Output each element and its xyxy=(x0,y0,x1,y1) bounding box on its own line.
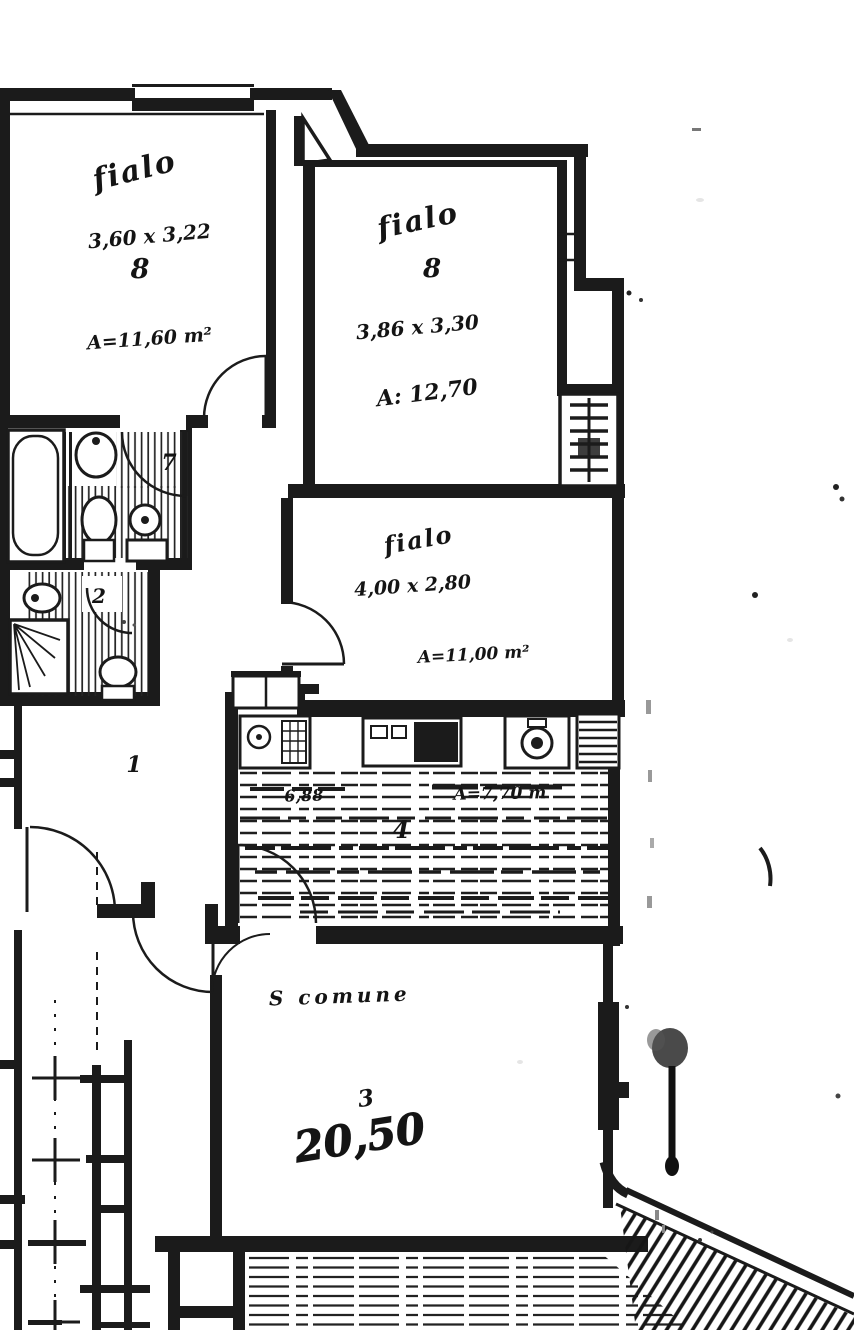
burner xyxy=(371,726,387,738)
sink-icon xyxy=(24,584,60,612)
diagonal-band-hatch xyxy=(620,1206,854,1330)
living-area: 20,50 xyxy=(290,1103,429,1172)
bedroom2-number: 8 xyxy=(422,254,441,284)
kitchen-area-scribble: A=7,70 m xyxy=(451,783,546,805)
bedroom1-number: 8 xyxy=(130,254,150,285)
ghost-mark xyxy=(650,838,654,848)
ghost-mark xyxy=(648,770,652,782)
bedroom3-area: A=11,00 m² xyxy=(415,642,530,668)
wall-stub xyxy=(0,778,18,787)
living-name: S comune xyxy=(268,982,411,1011)
radiator-icon xyxy=(560,394,618,486)
scan-noise xyxy=(122,128,845,1242)
wall xyxy=(574,144,586,290)
wall-stub xyxy=(0,1240,22,1249)
wall-stub xyxy=(0,1060,22,1069)
floor-plan-drawing: fialo 3,60 x 3,22 8 A=11,60 m² fialo 8 3… xyxy=(0,0,854,1330)
speck xyxy=(836,1094,841,1099)
bidet-base xyxy=(84,540,114,561)
door-arc xyxy=(133,912,213,992)
diagonal-wall xyxy=(328,90,369,151)
wall xyxy=(0,88,135,101)
wall xyxy=(603,944,613,1004)
toilet-dot xyxy=(141,516,149,524)
toilet-tank xyxy=(127,540,167,561)
wall-stub xyxy=(0,750,18,759)
kitchen-sink-unit xyxy=(240,716,310,768)
wall-stub xyxy=(0,1195,25,1204)
wall xyxy=(210,975,222,1238)
wall xyxy=(141,882,155,906)
wall xyxy=(168,1252,180,1330)
living-number: 3 xyxy=(356,1084,376,1113)
paper-smudge xyxy=(787,638,793,642)
bathtub-basin xyxy=(13,436,58,555)
triangle-outline xyxy=(303,118,330,164)
door-arc xyxy=(204,356,266,418)
hallway-number: 1 xyxy=(126,752,141,778)
wall-tick xyxy=(80,1285,150,1293)
speck xyxy=(639,298,643,302)
ghost-mark xyxy=(662,1225,665,1233)
flue-shaft-icon xyxy=(577,714,619,768)
door-arc xyxy=(282,602,344,664)
ghost-mark xyxy=(646,700,651,714)
bathroom-small-number: 2 xyxy=(91,584,106,608)
wardrobe-icon xyxy=(231,671,301,708)
tub-divider xyxy=(63,432,66,558)
scanned-floor-plan-page: fialo 3,60 x 3,22 8 A=11,60 m² fialo 8 3… xyxy=(0,0,854,1330)
wall xyxy=(172,1306,234,1318)
wall xyxy=(557,160,567,392)
paper-smudge xyxy=(517,1060,523,1064)
wall-thick xyxy=(598,1002,619,1130)
bedroom2-dimensions: 3,86 x 3,30 xyxy=(355,310,480,345)
speck xyxy=(698,1238,702,1242)
stove-dark-half xyxy=(414,722,458,762)
drainer-grid xyxy=(282,721,306,763)
bedroom1-scribble: fialo xyxy=(87,144,180,199)
window-sill xyxy=(132,98,254,111)
toilet-icon xyxy=(100,657,136,687)
wall xyxy=(233,1252,245,1330)
kitchen-value: 6,88 xyxy=(284,785,324,805)
wall xyxy=(148,568,160,706)
wall xyxy=(0,95,10,427)
bidet-icon xyxy=(82,497,116,543)
wall-notch xyxy=(613,1082,629,1098)
speck xyxy=(627,291,632,296)
speck xyxy=(122,620,126,624)
bedroom1-area: A=11,60 m² xyxy=(84,324,212,355)
speck xyxy=(752,592,758,598)
bathroom-main-number: 7 xyxy=(161,450,177,476)
bedroom3-scribble: fialo xyxy=(380,519,456,560)
washer-door xyxy=(531,737,543,749)
wall xyxy=(303,160,315,484)
wall xyxy=(356,144,588,157)
wall xyxy=(250,88,332,100)
wall-tick xyxy=(100,1205,132,1213)
kitchen-number: 4 xyxy=(393,815,410,844)
door-arc xyxy=(30,827,115,912)
drain-dot xyxy=(256,734,262,740)
wall xyxy=(225,705,238,930)
faucet-dot xyxy=(31,594,39,602)
burner xyxy=(392,726,406,738)
wall-tick xyxy=(95,1322,150,1328)
washer-panel xyxy=(528,719,546,727)
speck xyxy=(833,484,839,490)
wall xyxy=(315,160,565,167)
wall xyxy=(155,1236,648,1252)
wall xyxy=(205,926,240,944)
cross-marks xyxy=(32,1056,80,1330)
bedroom2-area: A: 12,70 xyxy=(373,374,480,413)
ink-blot xyxy=(647,1029,665,1051)
bedroom3-dimensions: 4,00 x 2,80 xyxy=(353,571,471,601)
speck xyxy=(692,128,701,131)
ghost-mark xyxy=(647,896,652,908)
wall xyxy=(14,930,22,1330)
wall-tick xyxy=(80,1075,132,1083)
bath1-tile-hatch xyxy=(116,432,188,488)
ink-blot xyxy=(665,1156,679,1176)
radiator-smudge xyxy=(578,438,600,458)
balcony-hatch xyxy=(245,1252,690,1330)
wall xyxy=(14,705,22,829)
faucet-dot xyxy=(92,437,100,445)
window-line xyxy=(132,84,254,87)
door-opening xyxy=(120,413,186,430)
bedroom1-dimensions: 3,60 x 3,22 xyxy=(87,219,212,254)
wardrobe-top xyxy=(231,671,301,677)
wall-tick xyxy=(86,1155,132,1163)
wall xyxy=(281,498,293,604)
speck xyxy=(840,497,845,502)
bedroom2-scribble: fialo xyxy=(372,195,462,246)
wall xyxy=(262,415,276,428)
stove-icon xyxy=(363,718,461,766)
ghost-mark xyxy=(655,1210,659,1220)
wall xyxy=(316,926,623,944)
speck xyxy=(711,1231,714,1234)
tub-divider xyxy=(69,432,72,558)
pen-stroke xyxy=(760,848,771,886)
triangle-marker xyxy=(294,116,330,166)
speck xyxy=(133,624,136,627)
washer-icon xyxy=(505,716,569,768)
wall xyxy=(97,904,155,918)
paper-smudge xyxy=(696,198,704,202)
speck xyxy=(625,1005,629,1009)
toilet-base xyxy=(102,686,134,700)
